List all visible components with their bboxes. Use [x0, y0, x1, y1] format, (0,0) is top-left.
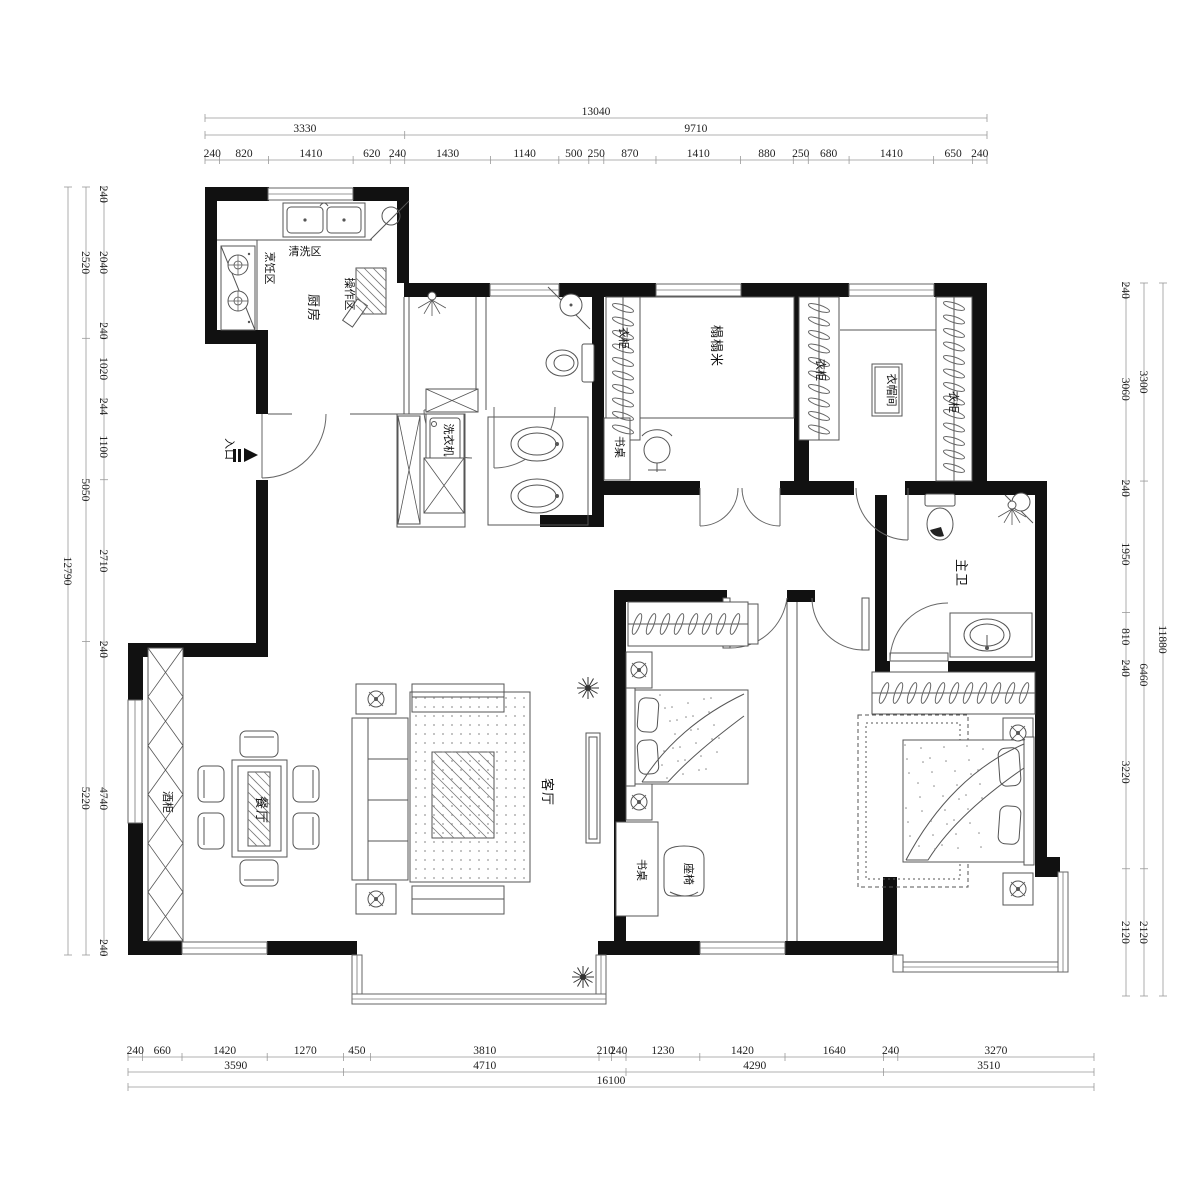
svg-text:240: 240 [97, 186, 109, 204]
bay-window [352, 955, 606, 1004]
tatami-office-chair [642, 430, 672, 472]
tv-cabinet [586, 733, 600, 843]
svg-text:240: 240 [971, 148, 989, 160]
svg-text:1410: 1410 [880, 148, 903, 160]
svg-text:250: 250 [588, 148, 606, 160]
svg-text:660: 660 [154, 1045, 172, 1057]
svg-text:4710: 4710 [473, 1060, 496, 1072]
label-closet-wardrobe: 衣柜 [947, 391, 961, 413]
svg-text:240: 240 [97, 939, 109, 957]
svg-text:1420: 1420 [213, 1045, 236, 1057]
master-wardrobe [872, 672, 1035, 714]
label-living-room: 客厅 [540, 778, 555, 806]
window-dining-south [182, 942, 267, 954]
svg-text:240: 240 [610, 1045, 628, 1057]
label-wash-area: 清洗区 [289, 245, 322, 258]
bedroom2-bed [626, 688, 748, 786]
svg-text:810: 810 [1119, 628, 1131, 646]
svg-text:5220: 5220 [79, 787, 91, 810]
vanity-double-basin [511, 427, 563, 513]
floor-plan-canvas: 1304033309710240820141062024014301140500… [0, 0, 1200, 1200]
label-tatami-desk: 书桌 [613, 436, 626, 458]
svg-text:650: 650 [944, 148, 962, 160]
svg-text:3270: 3270 [984, 1045, 1007, 1057]
svg-text:500: 500 [565, 148, 583, 160]
window-tatami [656, 284, 741, 296]
label-mid-wardrobe: 衣柜 [814, 359, 828, 381]
svg-text:1230: 1230 [651, 1045, 674, 1057]
window-bedroom2-south [700, 942, 785, 954]
svg-text:3590: 3590 [224, 1060, 247, 1072]
svg-text:9710: 9710 [684, 123, 707, 135]
svg-text:2120: 2120 [1119, 921, 1131, 944]
svg-text:2040: 2040 [97, 251, 109, 274]
svg-text:1420: 1420 [731, 1045, 754, 1057]
svg-text:240: 240 [204, 148, 222, 160]
svg-text:3220: 3220 [1119, 761, 1131, 784]
svg-text:240: 240 [97, 322, 109, 340]
kitchen-sink [283, 203, 365, 237]
svg-text:11880: 11880 [1156, 625, 1168, 654]
svg-text:3510: 3510 [977, 1060, 1000, 1072]
window-kitchen [268, 188, 353, 200]
svg-text:680: 680 [820, 148, 838, 160]
window-living-west [128, 700, 142, 823]
floor-plan-drawing: 1304033309710240820141062024014301140500… [0, 0, 1200, 1200]
svg-text:5050: 5050 [79, 478, 91, 501]
cloakroom-wardrobe-right [936, 297, 972, 481]
svg-text:2710: 2710 [97, 549, 109, 572]
svg-text:6460: 6460 [1137, 663, 1149, 686]
entry-arrow [233, 448, 258, 462]
label-cloakroom: 衣帽间 [885, 374, 899, 407]
svg-text:1270: 1270 [294, 1045, 317, 1057]
master-toilet [925, 494, 955, 540]
svg-text:820: 820 [235, 148, 253, 160]
window-shower [490, 284, 559, 296]
svg-text:240: 240 [1119, 480, 1131, 498]
master-bed [903, 737, 1034, 865]
svg-text:1410: 1410 [299, 148, 322, 160]
svg-text:250: 250 [792, 148, 810, 160]
svg-text:450: 450 [348, 1045, 366, 1057]
svg-text:240: 240 [1119, 660, 1131, 678]
label-master-bath: 主卫 [954, 559, 969, 587]
window-cloakroom [849, 284, 934, 296]
svg-text:1140: 1140 [513, 148, 536, 160]
label-prep-area: 操作区 [343, 278, 357, 311]
label-wine-cabinet: 酒柜 [161, 791, 174, 813]
shower-head-icon [428, 292, 436, 300]
svg-text:240: 240 [882, 1045, 900, 1057]
label-bedroom-chair: 座椅 [682, 863, 696, 885]
svg-text:1640: 1640 [823, 1045, 846, 1057]
svg-text:1950: 1950 [1119, 542, 1131, 565]
label-dining-room: 餐厅 [254, 796, 269, 824]
svg-text:3330: 3330 [293, 123, 316, 135]
tatami-door [700, 488, 780, 526]
svg-text:240: 240 [389, 148, 407, 160]
entry-door [262, 414, 326, 478]
svg-text:3810: 3810 [473, 1045, 496, 1057]
furniture [148, 201, 1035, 941]
master-vanity [950, 613, 1032, 657]
svg-text:3060: 3060 [1119, 378, 1131, 401]
shower-head-icon [1008, 501, 1016, 509]
svg-text:870: 870 [621, 148, 639, 160]
svg-text:13040: 13040 [582, 106, 611, 118]
label-tatami: 榻榻米 [709, 325, 724, 367]
svg-text:4290: 4290 [743, 1060, 766, 1072]
svg-text:16100: 16100 [597, 1075, 626, 1087]
label-bedroom-desk: 书桌 [635, 859, 648, 881]
master-bath-door [890, 603, 948, 661]
label-tatami-wardrobe: 衣柜 [617, 327, 631, 349]
bath2-toilet [546, 344, 594, 382]
svg-text:1020: 1020 [97, 357, 109, 380]
label-washer: 洗衣机 [442, 424, 456, 457]
svg-text:1410: 1410 [687, 148, 710, 160]
svg-text:240: 240 [1119, 282, 1131, 300]
svg-text:4740: 4740 [97, 787, 109, 810]
svg-text:12790: 12790 [61, 557, 73, 586]
svg-text:1430: 1430 [436, 148, 459, 160]
label-entry: 入口 [223, 438, 235, 460]
svg-text:2120: 2120 [1137, 921, 1149, 944]
master-bedroom-door [812, 598, 869, 650]
svg-text:880: 880 [758, 148, 776, 160]
svg-text:2520: 2520 [79, 251, 91, 274]
label-kitchen: 厨房 [306, 294, 321, 322]
svg-text:240: 240 [97, 641, 109, 659]
svg-text:1100: 1100 [97, 435, 109, 458]
svg-text:240: 240 [127, 1045, 145, 1057]
svg-text:244: 244 [97, 398, 109, 416]
label-cook-area: 烹饪区 [263, 252, 277, 285]
svg-text:3300: 3300 [1137, 371, 1149, 394]
svg-text:620: 620 [363, 148, 381, 160]
